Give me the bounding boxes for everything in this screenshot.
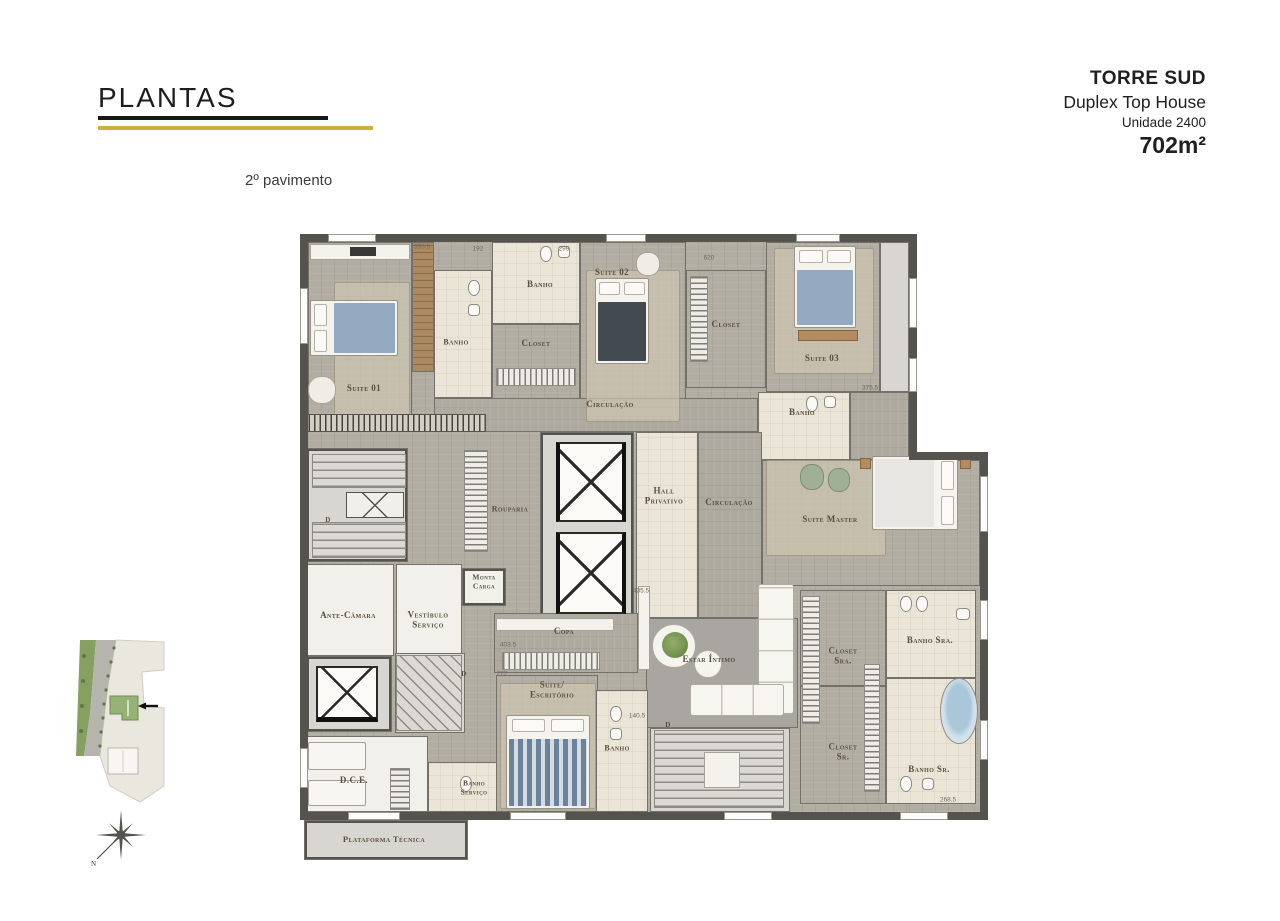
dimension-label: 375.5 bbox=[862, 385, 878, 392]
room-label: Copa bbox=[554, 626, 574, 636]
room-circulacao-link bbox=[850, 392, 909, 460]
pillow bbox=[624, 282, 645, 295]
dimension-label: 192 bbox=[473, 246, 484, 253]
room-label: Banho bbox=[789, 407, 815, 417]
window bbox=[348, 812, 400, 820]
closet-rack bbox=[802, 596, 820, 724]
floor-plan: Suite 01BanhoBanhoClosetSuite 02ClosetSu… bbox=[300, 228, 990, 868]
wall bbox=[909, 452, 988, 460]
room-banho-suite-01 bbox=[434, 270, 492, 398]
sink bbox=[824, 396, 836, 408]
dimension-label: 299 bbox=[559, 246, 570, 253]
title-rule-gold bbox=[98, 126, 373, 130]
pillow bbox=[599, 282, 620, 295]
room-circulacao-meio bbox=[698, 432, 762, 618]
wardrobe bbox=[390, 768, 410, 810]
armchair bbox=[308, 376, 336, 404]
pillow bbox=[551, 719, 584, 732]
bed-suite-02 bbox=[595, 278, 649, 364]
wall bbox=[909, 234, 917, 460]
room-label: Suite/ Escritório bbox=[530, 680, 574, 701]
room-label: Closet bbox=[522, 338, 551, 348]
compass-needle-head bbox=[97, 855, 101, 859]
window bbox=[606, 234, 646, 242]
window bbox=[796, 234, 840, 242]
room-label: Ante-Câmara bbox=[320, 610, 376, 620]
stair-landing bbox=[346, 492, 404, 518]
window bbox=[300, 748, 308, 788]
unit-area: 702m² bbox=[1063, 132, 1206, 159]
room-label: D bbox=[461, 670, 466, 678]
bidet bbox=[916, 596, 928, 612]
bed-escritorio bbox=[506, 715, 590, 809]
room-label: Closet Sr. bbox=[829, 742, 858, 763]
bed-suite-03 bbox=[794, 246, 856, 328]
sink bbox=[956, 608, 970, 620]
room-deck-suite-01 bbox=[412, 242, 434, 372]
room-label: D bbox=[665, 721, 670, 729]
window bbox=[300, 288, 308, 344]
room-label: Banho Sra. bbox=[907, 635, 953, 645]
room-label: Plataforma Técnica bbox=[343, 835, 425, 845]
toilet bbox=[610, 706, 622, 722]
floor-label: 2º pavimento bbox=[245, 172, 332, 189]
compass-rose: N bbox=[86, 800, 156, 870]
wall bbox=[300, 812, 988, 820]
rug bbox=[766, 460, 886, 556]
armchair bbox=[828, 468, 850, 492]
armchair bbox=[800, 464, 824, 490]
unit-type: Duplex Top House bbox=[1063, 92, 1206, 113]
page-title: PLANTAS bbox=[98, 82, 238, 114]
dimension-label: 395.5 bbox=[414, 244, 430, 251]
window bbox=[510, 812, 566, 820]
room-label: Monta Carga bbox=[472, 573, 495, 590]
window bbox=[328, 234, 376, 242]
elevator bbox=[556, 442, 626, 522]
room-label: Banho Serviço bbox=[461, 779, 488, 796]
room-label: Suite 01 bbox=[347, 383, 381, 393]
bed-blanket bbox=[875, 459, 934, 527]
window bbox=[724, 812, 772, 820]
window bbox=[980, 476, 988, 532]
window bbox=[980, 600, 988, 640]
window bbox=[900, 812, 948, 820]
dimension-label: 435.5 bbox=[633, 588, 649, 595]
toilet bbox=[900, 776, 912, 792]
closet-rack bbox=[864, 664, 880, 792]
stair-run bbox=[312, 454, 406, 488]
compass-north-label: N bbox=[91, 860, 96, 868]
room-label: D.C.E. bbox=[340, 775, 368, 785]
title-rule-black bbox=[98, 116, 328, 120]
stair-landing bbox=[704, 752, 740, 788]
pillow bbox=[941, 496, 954, 525]
bed-blanket bbox=[509, 739, 587, 806]
bathtub bbox=[940, 678, 978, 744]
dimension-label: 620 bbox=[704, 255, 715, 262]
room-label: Banho Sr. bbox=[908, 764, 949, 774]
dimension-label: 403.5 bbox=[500, 642, 516, 649]
sink bbox=[922, 778, 934, 790]
room-banho-suite-03 bbox=[758, 392, 850, 460]
room-label: Closet Sra. bbox=[829, 646, 858, 667]
room-closet-suite-02 bbox=[492, 324, 580, 400]
room-label: Estar Íntimo bbox=[682, 654, 735, 664]
bed-blanket bbox=[334, 303, 395, 353]
dimension-label: 272 bbox=[497, 671, 508, 678]
toilet bbox=[468, 280, 480, 296]
unit-number: Unidade 2400 bbox=[1063, 115, 1206, 130]
pillow bbox=[799, 250, 823, 263]
louver-strip bbox=[302, 414, 486, 432]
stair-run bbox=[312, 522, 406, 558]
copa-rack bbox=[502, 652, 600, 670]
dimension-label: 140.5 bbox=[629, 713, 645, 720]
pillow bbox=[827, 250, 851, 263]
window bbox=[980, 720, 988, 760]
room-label: Banho bbox=[443, 337, 468, 346]
tower-name: TORRE SUD bbox=[1063, 68, 1206, 90]
pillow bbox=[314, 330, 327, 352]
room-label: Closet bbox=[712, 319, 741, 329]
room-label: D bbox=[325, 516, 330, 524]
pillow bbox=[314, 304, 327, 326]
closet-rack bbox=[496, 368, 576, 386]
bed-suite-01 bbox=[310, 300, 398, 356]
pillow bbox=[512, 719, 545, 732]
compass-north-needle bbox=[97, 835, 121, 859]
sideboard bbox=[638, 586, 650, 670]
room-label: Vestíbulo Serviço bbox=[408, 610, 449, 631]
sink bbox=[610, 728, 622, 740]
tv bbox=[350, 247, 376, 256]
closet-rack bbox=[690, 276, 708, 362]
elevator bbox=[556, 532, 626, 614]
sink bbox=[468, 304, 480, 316]
service-elevator bbox=[316, 666, 378, 722]
room-label: Circulação bbox=[705, 497, 753, 507]
sofa bbox=[690, 684, 784, 716]
pillow bbox=[941, 461, 954, 490]
rouparia-cabinet bbox=[464, 450, 488, 552]
room-label: Banho bbox=[527, 279, 553, 289]
page: PLANTAS 2º pavimento TORRE SUD Duplex To… bbox=[0, 0, 1280, 921]
nightstand bbox=[860, 458, 871, 469]
room-label: Banho bbox=[604, 743, 629, 752]
room-label: Suite 03 bbox=[805, 353, 839, 363]
room-label: Suite Master bbox=[802, 514, 857, 524]
bed-blanket bbox=[797, 270, 853, 325]
bed-blanket bbox=[598, 302, 646, 361]
dimension-label: 268.5 bbox=[940, 797, 956, 804]
room-label: Suite 02 bbox=[595, 267, 629, 277]
room-label: Hall Privativo bbox=[645, 486, 683, 507]
room-shaft-top-right bbox=[880, 242, 909, 392]
bed-suite-master bbox=[872, 456, 958, 530]
room-label: Rouparia bbox=[492, 504, 529, 513]
bed-dce bbox=[308, 742, 366, 770]
winder-stair bbox=[396, 655, 462, 731]
toilet bbox=[540, 246, 552, 262]
armchair bbox=[636, 252, 660, 276]
room-label: Circulação bbox=[586, 399, 634, 409]
site-map bbox=[70, 636, 170, 808]
window bbox=[909, 278, 917, 328]
project-info: TORRE SUD Duplex Top House Unidade 2400 … bbox=[1063, 68, 1206, 159]
window bbox=[909, 358, 917, 392]
toilet bbox=[900, 596, 912, 612]
bench bbox=[798, 330, 858, 341]
